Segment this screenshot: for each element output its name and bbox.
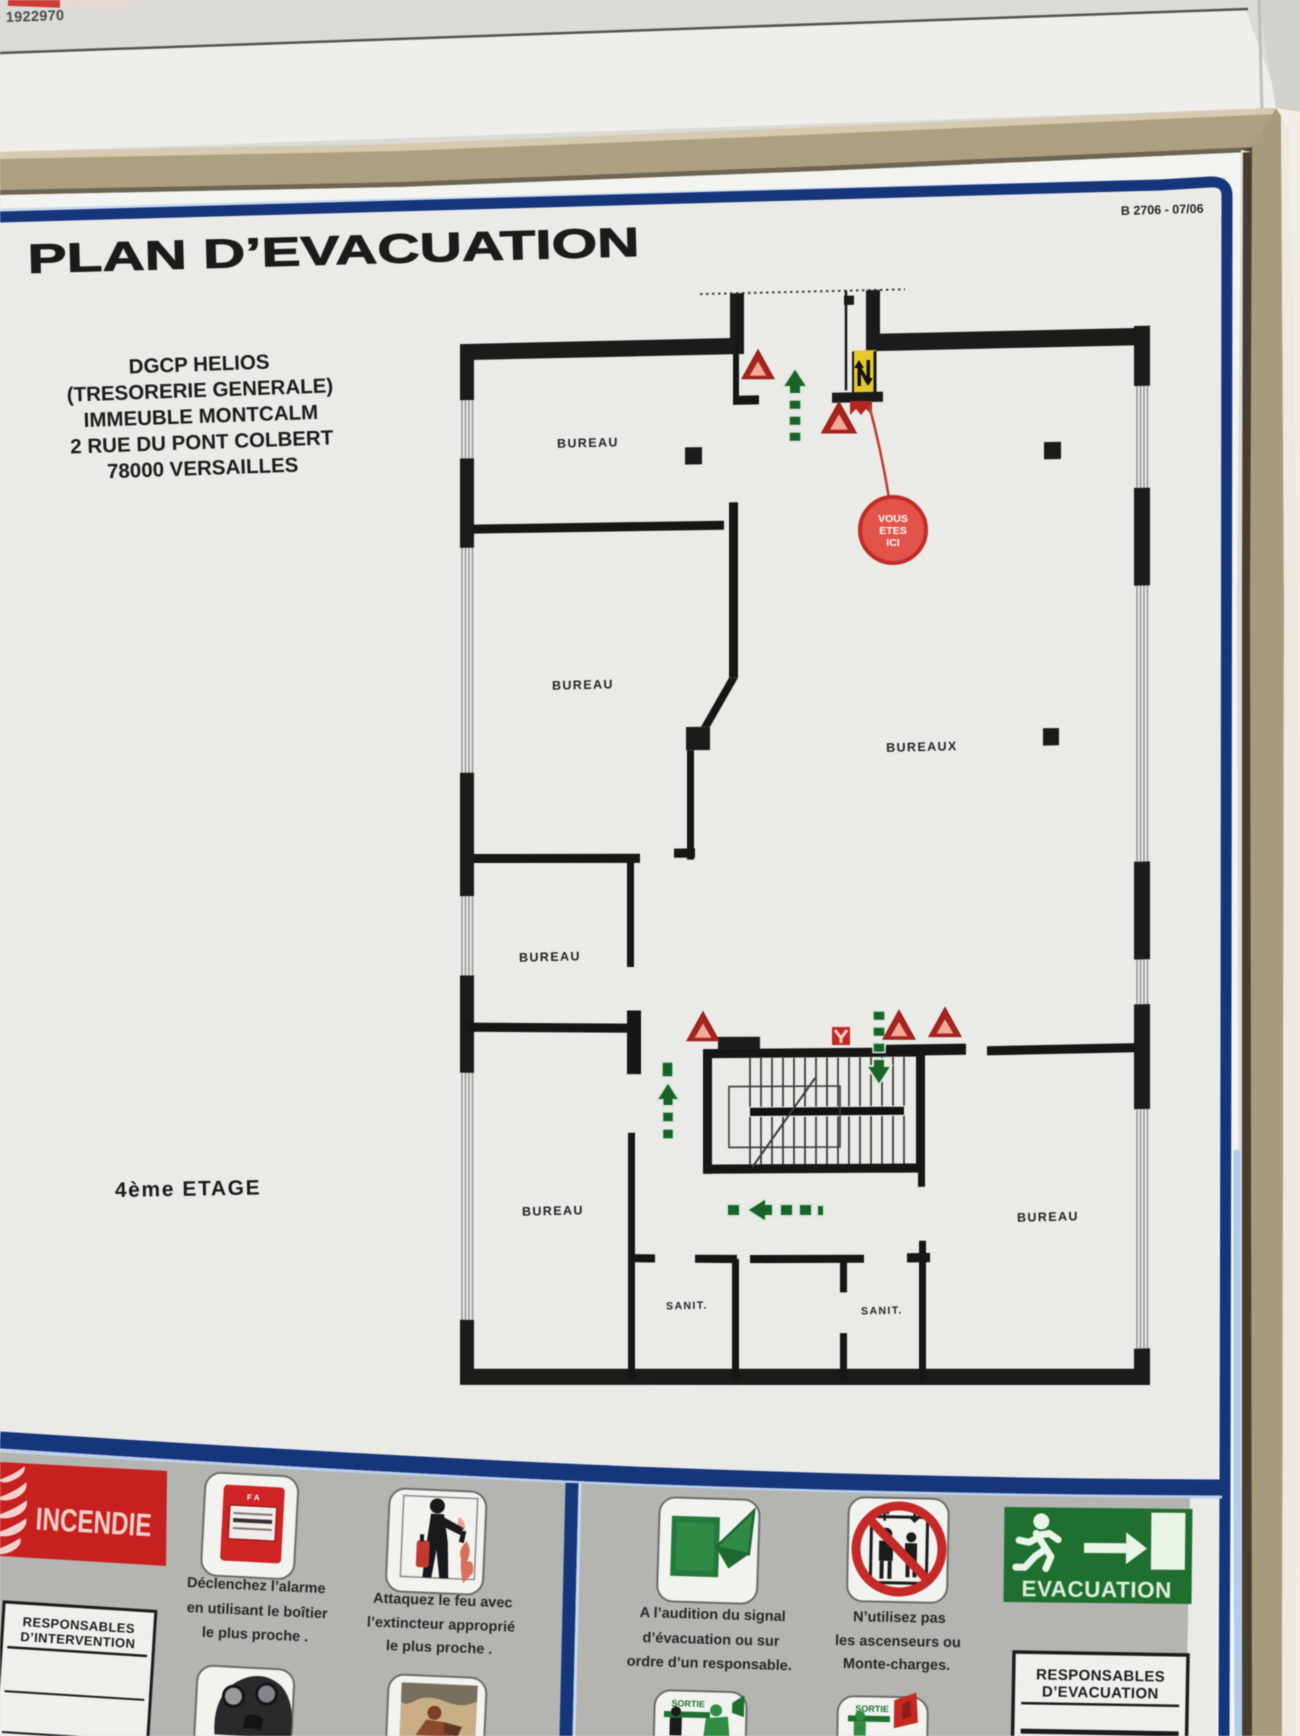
svg-text:BUREAU: BUREAU — [1017, 1209, 1079, 1224]
svg-text:1922970: 1922970 — [6, 8, 65, 26]
svg-text:B 2706 - 07/06: B 2706 - 07/06 — [1121, 202, 1204, 218]
svg-text:BUREAU: BUREAU — [522, 1203, 584, 1218]
svg-text:SANIT.: SANIT. — [861, 1305, 903, 1318]
svg-text:F A: F A — [247, 1493, 260, 1503]
svg-text:VOUS: VOUS — [878, 513, 908, 525]
svg-text:N’utilisez pas: N’utilisez pas — [853, 1609, 946, 1627]
svg-text:BUREAUX: BUREAUX — [886, 739, 958, 755]
svg-text:INCENDIE: INCENDIE — [35, 1500, 153, 1543]
svg-text:Monte-charges.: Monte-charges. — [843, 1656, 950, 1674]
svg-text:BUREAU: BUREAU — [557, 435, 619, 450]
svg-text:BUREAU: BUREAU — [519, 949, 581, 964]
svg-text:ETES: ETES — [879, 525, 906, 537]
svg-text:DGCP HELIOS: DGCP HELIOS — [128, 351, 270, 379]
svg-text:SANIT.: SANIT. — [666, 1300, 708, 1313]
svg-text:ICI: ICI — [886, 537, 900, 549]
svg-text:D’EVACUATION: D’EVACUATION — [1042, 1683, 1159, 1702]
svg-text:BUREAU: BUREAU — [552, 677, 614, 692]
svg-text:4ème ETAGE: 4ème ETAGE — [115, 1176, 262, 1202]
svg-text:EVACUATION: EVACUATION — [1021, 1576, 1172, 1603]
svg-text:les ascenseurs ou: les ascenseurs ou — [835, 1633, 961, 1651]
